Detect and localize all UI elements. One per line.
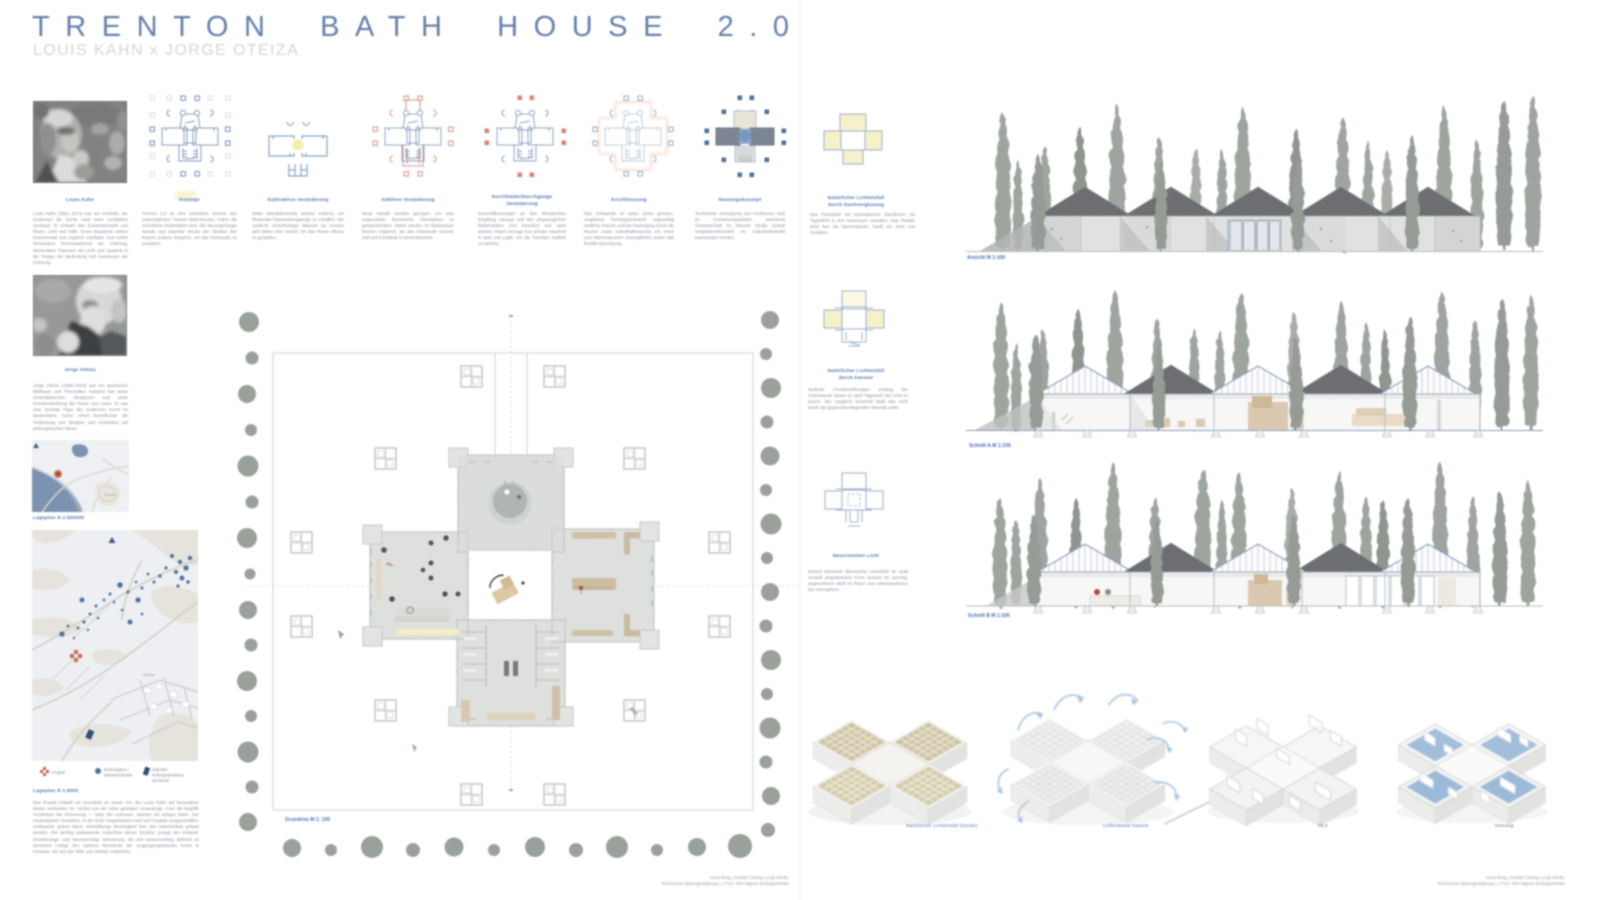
- svg-text:Schnitt B M 1:100: Schnitt B M 1:100: [968, 613, 1010, 619]
- svg-text:Schnitt A-M 1:100: Schnitt A-M 1:100: [969, 443, 1011, 449]
- svg-text:Grundriss M 1: 100: Grundriss M 1: 100: [285, 817, 330, 823]
- svg-text:Ansicht M 1:100: Ansicht M 1:100: [967, 255, 1005, 261]
